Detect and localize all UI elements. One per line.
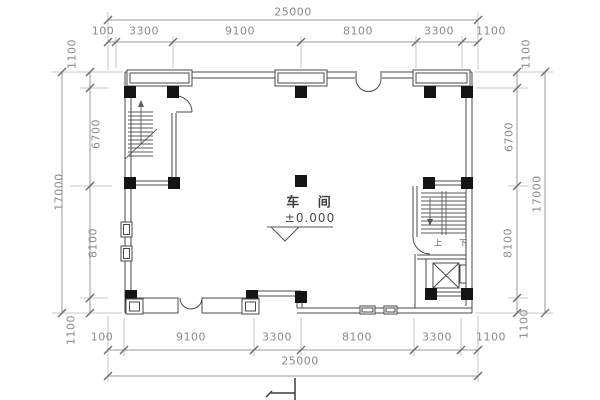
dim-left-seg-1100-bottom: 1100 <box>65 315 78 345</box>
dim-left-total: 17000 <box>53 173 66 211</box>
column <box>168 177 180 189</box>
dim-bottom-seg-3300b: 3300 <box>422 331 452 344</box>
door-stair-right <box>412 237 430 254</box>
dim-right-total: 17000 <box>531 175 544 213</box>
room-label: 车 间 <box>286 192 338 211</box>
dim-bottom-seg-8100: 8100 <box>342 331 372 344</box>
section-mark <box>266 378 295 400</box>
column <box>461 288 473 300</box>
elevation-marker <box>267 227 333 241</box>
column <box>425 288 437 300</box>
dim-top-seg-8100: 8100 <box>343 25 373 38</box>
staircase-left <box>125 100 157 159</box>
dim-right-seg-6700: 6700 <box>503 122 516 152</box>
window-bottom-1 <box>360 306 375 314</box>
dim-top-seg-9100: 9100 <box>225 25 255 38</box>
column <box>124 86 136 98</box>
window-left-2 <box>121 246 132 261</box>
double-door-bottom <box>178 297 202 314</box>
dim-left-seg-1100-top: 1100 <box>66 39 79 69</box>
staircase-right <box>421 191 466 235</box>
dim-right-seg-8100: 8100 <box>502 228 515 258</box>
window-bottom-2 <box>384 306 397 314</box>
dim-top-seg-3300: 3300 <box>129 25 159 38</box>
dim-bottom-seg-1100: 1100 <box>476 331 506 344</box>
window-top-1 <box>127 70 192 86</box>
column <box>424 86 436 98</box>
dim-bottom-seg-9100: 9100 <box>176 331 206 344</box>
column <box>423 177 435 189</box>
column <box>295 86 307 98</box>
dim-bottom-seg-3300: 3300 <box>262 331 292 344</box>
stair-down-label: 下 <box>459 238 467 249</box>
stair-arrow-head <box>138 100 144 107</box>
elevation-label: ±0.000 <box>285 211 335 225</box>
elevator-counterweight <box>460 265 466 283</box>
dim-top-total: 25000 <box>274 6 312 19</box>
column <box>295 291 307 303</box>
dim-top-seg-3300b: 3300 <box>424 25 454 38</box>
column <box>461 86 473 98</box>
dim-top-seg-1100: 1100 <box>476 25 506 38</box>
dim-top-seg-100: 100 <box>92 25 115 38</box>
stair-up-label: 上 <box>434 238 442 249</box>
dim-right-seg-1100-bottom: 1100 <box>518 309 531 339</box>
floor-plan-canvas: 25000 100 3300 9100 8100 3300 1100 100 9… <box>0 0 600 400</box>
dim-right-seg-1100-top: 1100 <box>520 39 533 69</box>
window-top-2 <box>275 70 327 86</box>
column <box>124 177 136 189</box>
window-left-1 <box>121 222 132 237</box>
column <box>295 175 307 187</box>
double-door-top <box>355 70 382 92</box>
dim-bottom-seg-100: 100 <box>91 331 114 344</box>
window-top-3 <box>413 70 470 86</box>
column <box>461 177 473 189</box>
dim-left-seg-6700: 6700 <box>90 119 103 149</box>
dim-bottom-total: 25000 <box>281 355 319 368</box>
elevation-triangle <box>271 227 299 241</box>
dim-left-seg-8100: 8100 <box>87 228 100 258</box>
column <box>167 86 179 98</box>
